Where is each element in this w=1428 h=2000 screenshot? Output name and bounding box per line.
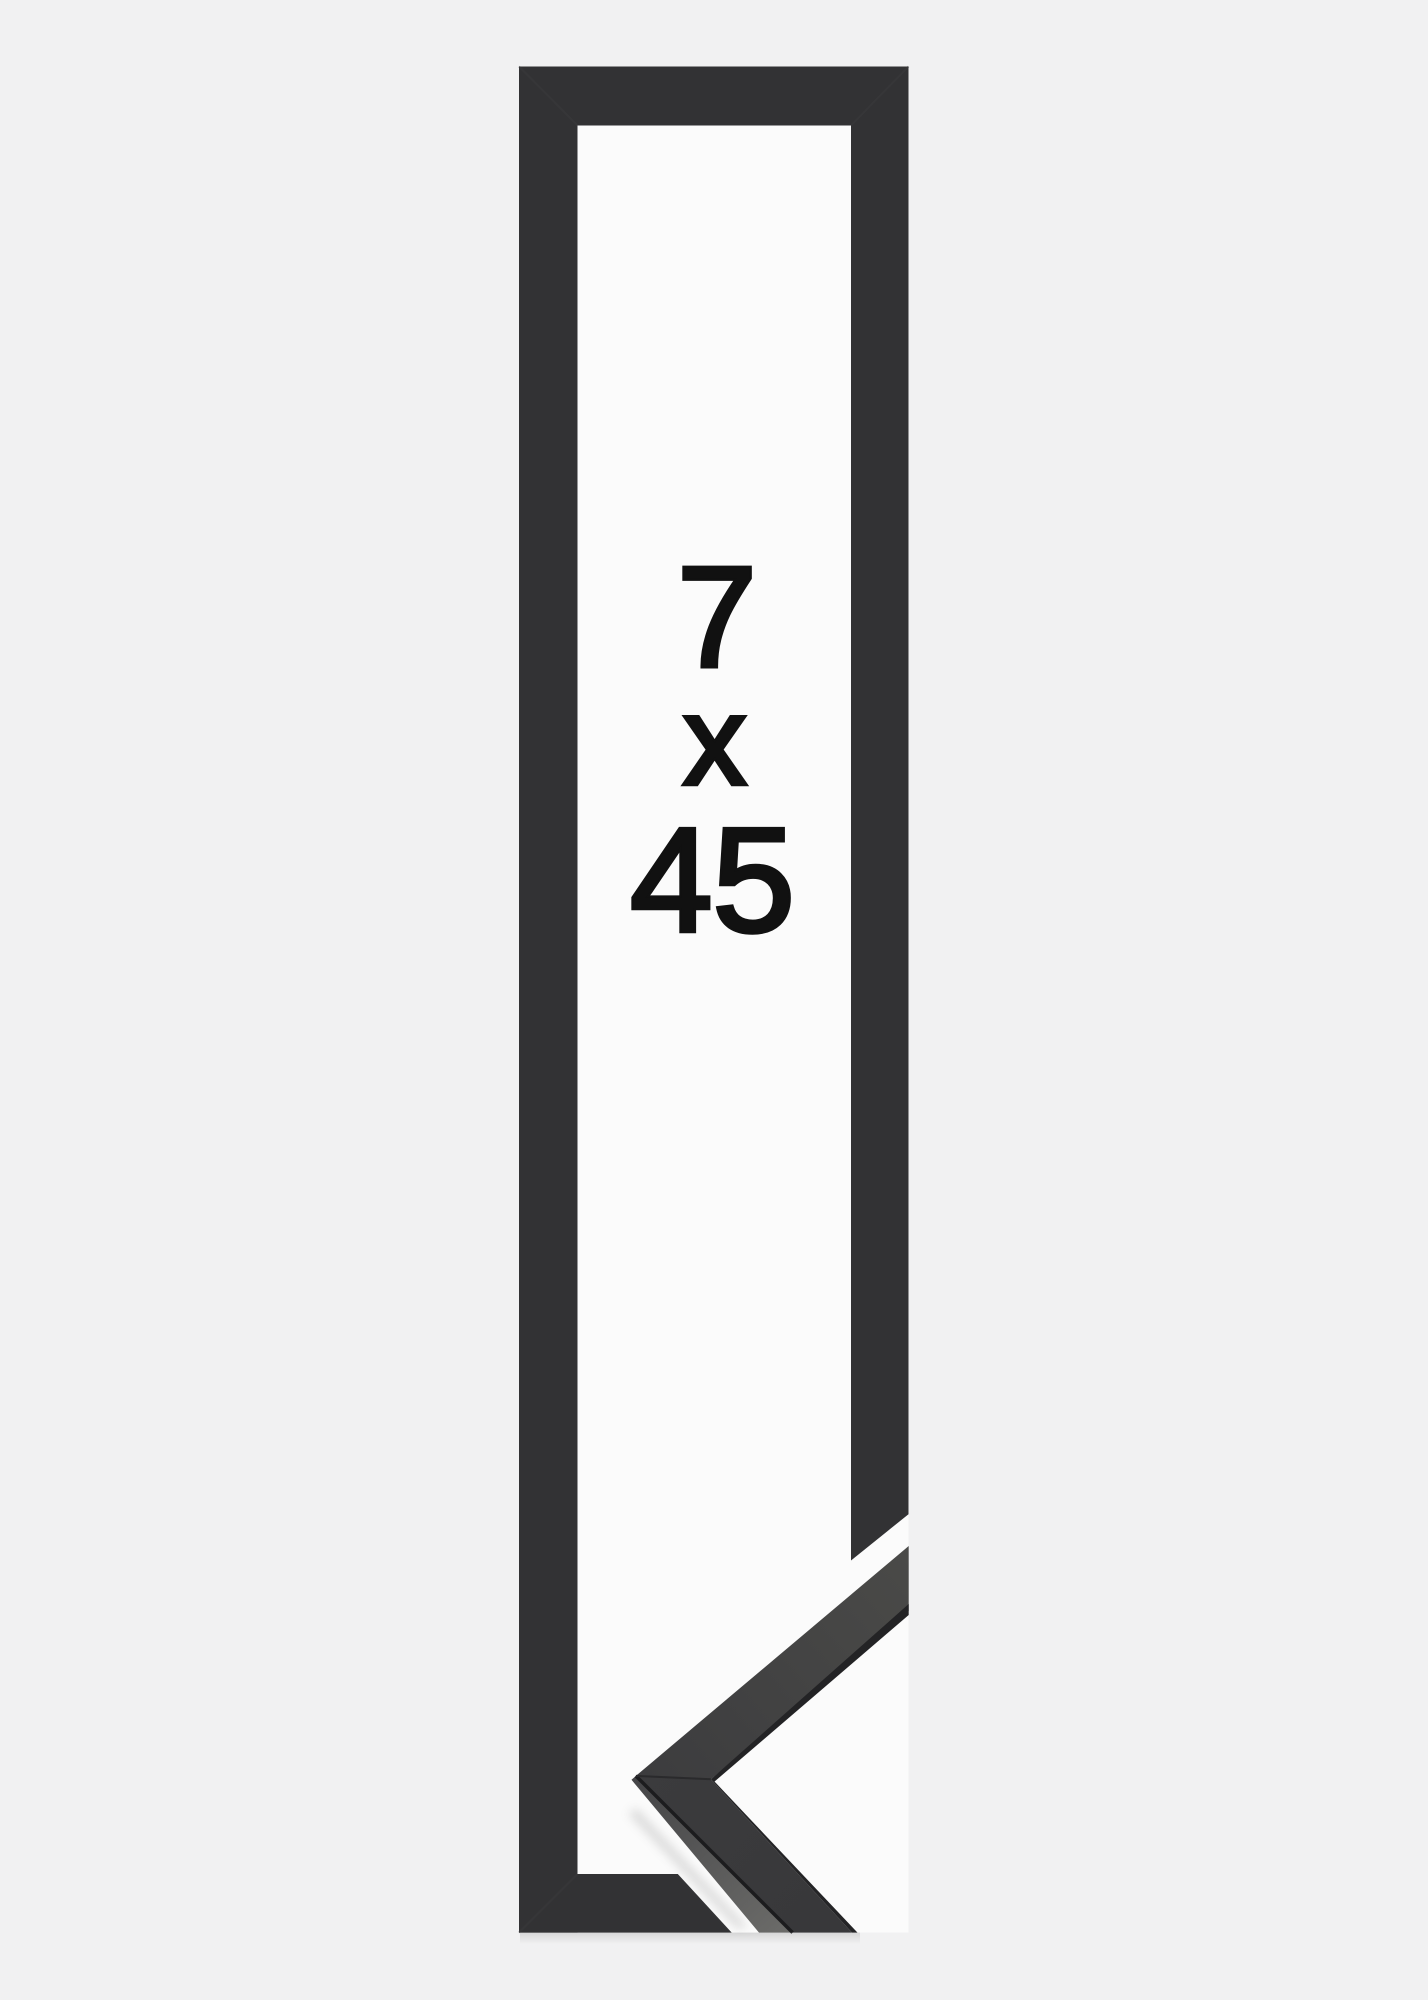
- svg-text:45: 45: [630, 798, 795, 963]
- svg-text:x: x: [683, 670, 746, 811]
